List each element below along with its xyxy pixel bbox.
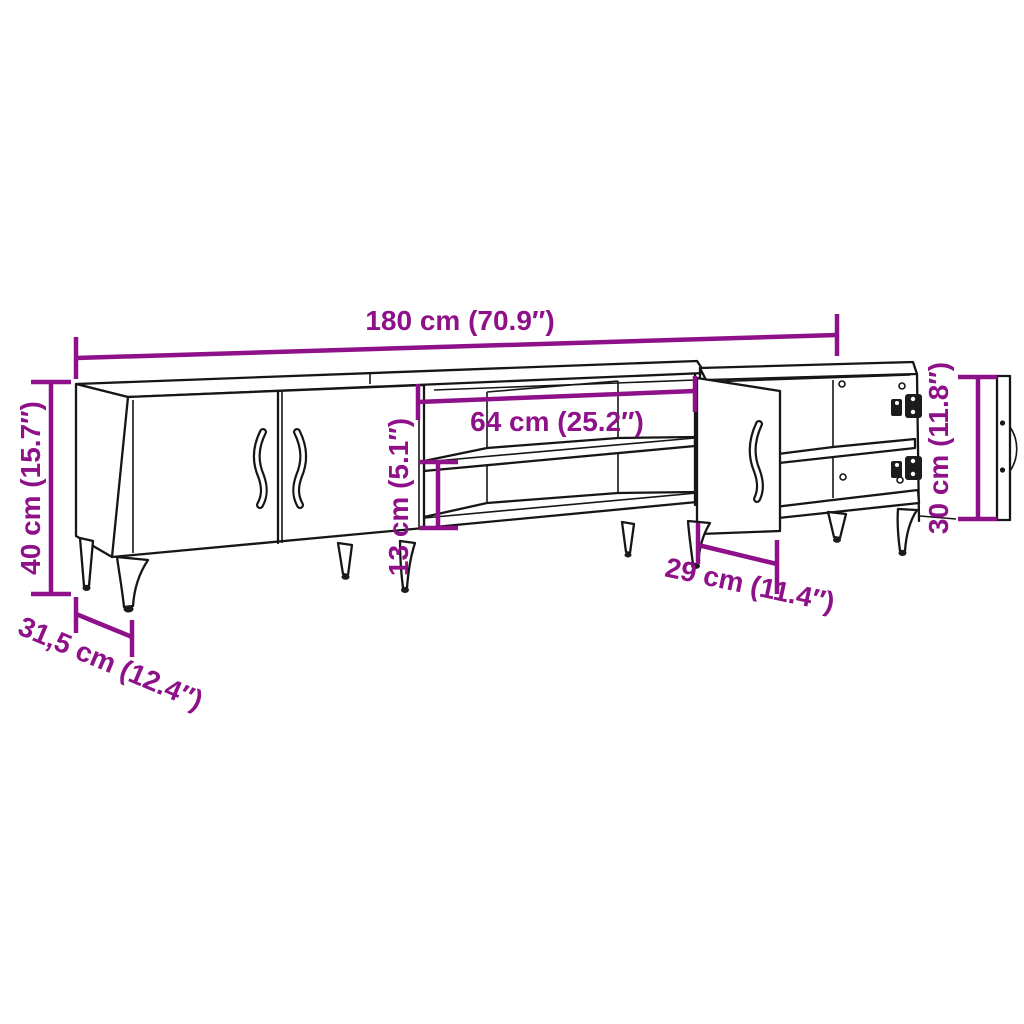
- leg: [828, 512, 846, 543]
- shelf-pin-hole: [839, 381, 845, 387]
- leg: [338, 543, 352, 580]
- dimension-door-height: 30 cm (11.8″): [923, 362, 997, 534]
- leg: [117, 557, 148, 613]
- left-cabinet-front: [112, 385, 424, 557]
- dimension-label-total-height: 40 cm (15.7″): [15, 401, 46, 575]
- door-edge-profile: [997, 376, 1010, 520]
- tv-stand-dimension-diagram: 180 cm (70.9″) 40 cm (15.7″) 31,5 cm (12…: [0, 0, 1024, 1024]
- dimension-label-open-shelf-width: 64 cm (25.2″): [470, 406, 644, 437]
- dimension-label-door-width: 29 cm (11.4″): [663, 552, 838, 618]
- hinge-top: [891, 394, 922, 418]
- right-cabinet-shelf: [770, 439, 915, 464]
- leg: [898, 509, 917, 556]
- handle-screw-dot: [1000, 420, 1005, 425]
- dimension-label-shelf-gap-height: 13 cm (5.1″): [383, 418, 414, 576]
- leg: [622, 522, 634, 558]
- shelf-pin-hole: [899, 383, 905, 389]
- dimension-label-door-height: 30 cm (11.8″): [923, 362, 954, 534]
- detached-door-panel: [997, 376, 1017, 520]
- dimension-total-height: 40 cm (15.7″): [15, 382, 71, 594]
- right-cabinet-top: [700, 362, 917, 380]
- open-door-panel: [697, 378, 780, 546]
- shelf-pin-hole: [840, 474, 846, 480]
- dimension-depth: 31,5 cm (12.4″): [14, 597, 208, 716]
- leg: [80, 538, 93, 591]
- product-dimension-image: 180 cm (70.9″) 40 cm (15.7″) 31,5 cm (12…: [0, 0, 1024, 1024]
- open-door: [697, 378, 780, 546]
- handle-screw-dot: [1000, 467, 1005, 472]
- left-cabinet: [112, 385, 424, 557]
- hinge-bottom: [891, 456, 922, 480]
- dimension-label-total-width: 180 cm (70.9″): [365, 305, 554, 336]
